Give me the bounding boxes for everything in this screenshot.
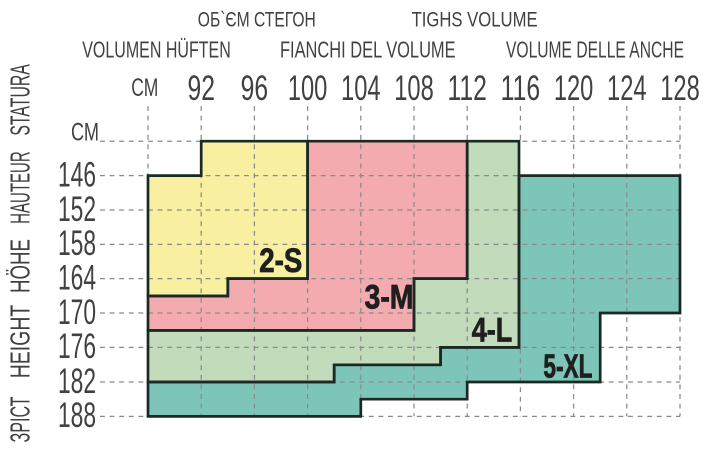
svg-text:TIGHS VOLUME: TIGHS VOLUME	[412, 6, 538, 31]
svg-text:5-XL: 5-XL	[543, 347, 592, 384]
svg-text:128: 128	[660, 69, 700, 108]
svg-text:ЗРІСТ: ЗРІСТ	[5, 396, 36, 442]
svg-text:96: 96	[241, 69, 269, 108]
svg-text:112: 112	[447, 69, 487, 108]
svg-text:4-L: 4-L	[472, 312, 513, 350]
svg-text:FIANCHI DEL VOLUME: FIANCHI DEL VOLUME	[280, 36, 456, 62]
svg-text:ОБ`ЄМ СТЕГОН: ОБ`ЄМ СТЕГОН	[198, 6, 316, 31]
svg-text:2-S: 2-S	[259, 242, 302, 280]
svg-text:120: 120	[554, 69, 594, 108]
svg-text:VOLUME DELLE ANCHE: VOLUME DELLE ANCHE	[506, 36, 684, 62]
svg-text:116: 116	[501, 69, 541, 108]
svg-text:124: 124	[607, 69, 647, 108]
svg-text:СМ: СМ	[131, 74, 158, 102]
svg-text:104: 104	[341, 69, 381, 108]
svg-text:HÖHE: HÖHE	[5, 239, 36, 293]
svg-text:3-M: 3-M	[365, 279, 414, 317]
svg-text:188: 188	[58, 395, 96, 435]
svg-text:HEIGHT: HEIGHT	[5, 305, 36, 379]
svg-text:HAUTEUR: HAUTEUR	[5, 151, 36, 224]
svg-text:STATURA: STATURA	[5, 64, 36, 136]
svg-text:VOLUMEN HÜFTEN: VOLUMEN HÜFTEN	[82, 36, 231, 62]
svg-text:92: 92	[187, 69, 215, 108]
svg-text:100: 100	[288, 69, 328, 108]
svg-text:108: 108	[394, 69, 434, 108]
svg-text:СМ: СМ	[71, 118, 99, 146]
